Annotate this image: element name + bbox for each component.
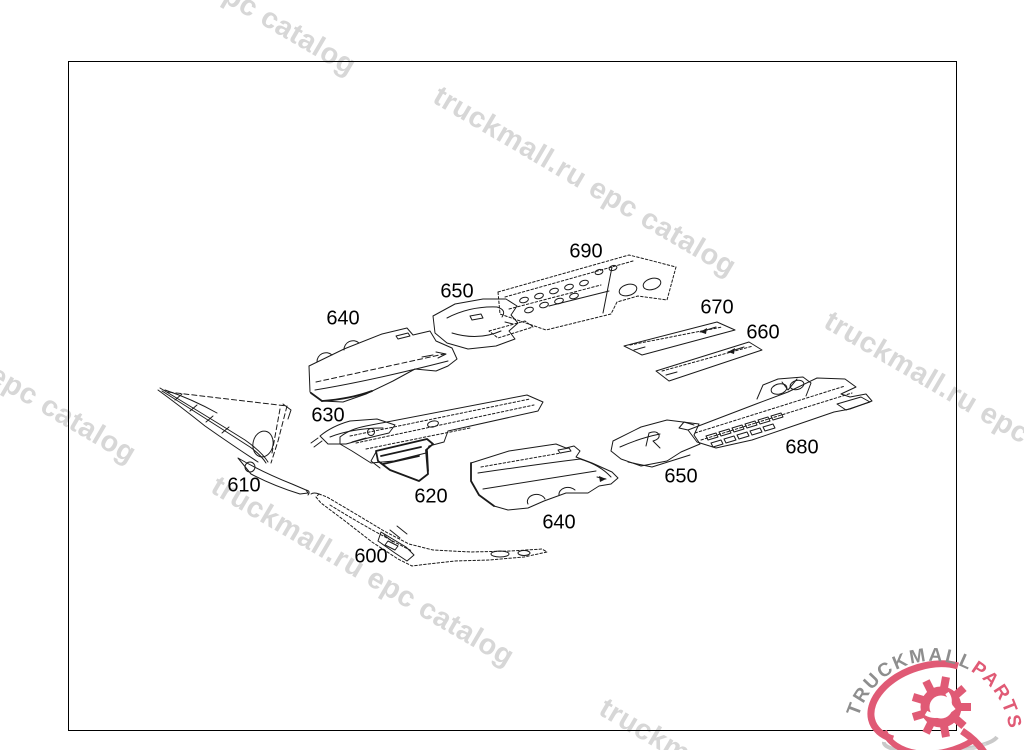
part-label-600: 600 (354, 546, 387, 569)
page-canvas: truckmall.ru epc catalogtruckmall.ru epc… (0, 0, 1024, 750)
part-640-lower-drawing (471, 444, 618, 510)
parts-diagram-canvas: TRUCKMALLPARTS (0, 0, 1024, 750)
gear-icon (913, 677, 971, 737)
part-label-650: 650 (664, 466, 697, 489)
part-label-640: 640 (542, 512, 575, 535)
part-label-640: 640 (326, 308, 359, 331)
part-690-drawing (498, 255, 676, 330)
part-label-690: 690 (569, 241, 602, 264)
part-label-610: 610 (227, 475, 260, 498)
part-label-660: 660 (746, 322, 779, 345)
part-670-drawing (624, 322, 735, 355)
part-label-670: 670 (700, 297, 733, 320)
part-640-upper-drawing (309, 328, 457, 402)
logo-text-parts: PARTS (968, 657, 1024, 731)
part-label-630: 630 (311, 405, 344, 428)
part-650-lower-drawing (611, 420, 700, 467)
gear-swirl-cut-2 (947, 693, 950, 707)
part-660-drawing (656, 342, 762, 381)
part-label-650: 650 (440, 281, 473, 304)
part-label-620: 620 (414, 486, 447, 509)
part-label-680: 680 (785, 437, 818, 460)
part-680-drawing (679, 377, 872, 448)
truckmall-logo: TRUCKMALLPARTS (843, 645, 1024, 750)
